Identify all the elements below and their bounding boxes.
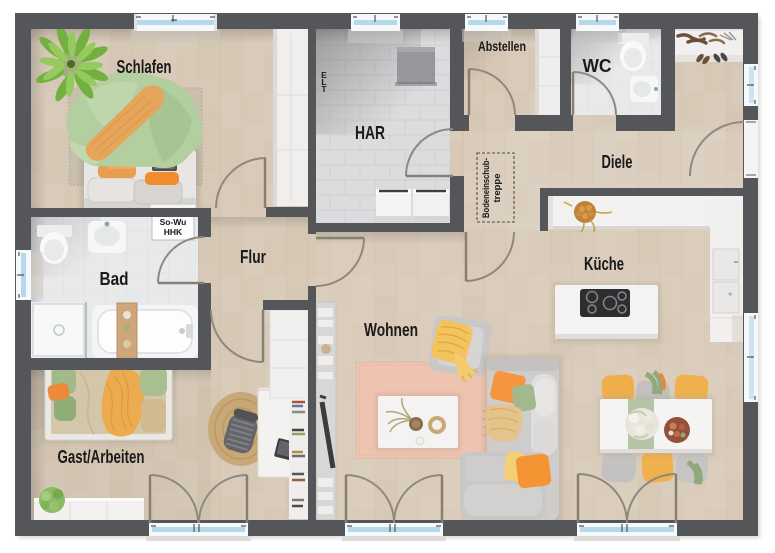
svg-text:So-Wu: So-Wu [160,217,187,227]
svg-text:Wohnen: Wohnen [364,320,418,340]
svg-text:HHK: HHK [164,227,183,237]
svg-text:treppe: treppe [492,173,503,202]
svg-text:Schlafen: Schlafen [117,57,172,77]
svg-text:WC: WC [583,56,612,76]
svg-text:Bodeneinschub-: Bodeneinschub- [481,158,492,218]
svg-text:Bad: Bad [100,269,129,289]
svg-text:HAR: HAR [355,123,385,143]
svg-text:Diele: Diele [602,152,633,172]
svg-text:Küche: Küche [584,254,624,274]
svg-text:T: T [321,84,327,94]
svg-text:Abstellen: Abstellen [478,38,526,54]
svg-text:Gast/Arbeiten: Gast/Arbeiten [58,447,145,467]
svg-text:Flur: Flur [240,247,266,267]
